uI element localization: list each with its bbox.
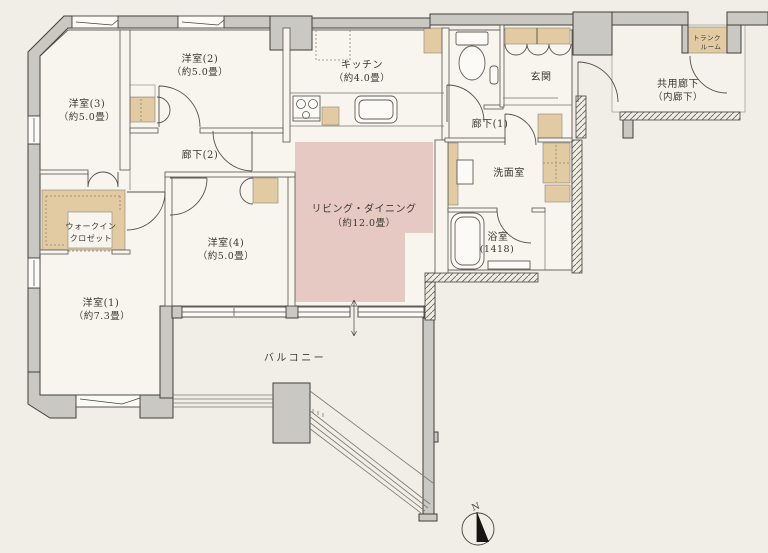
wall-left-mid [28, 144, 40, 258]
bedroom2-closet-shelf [127, 85, 155, 97]
kitchen-cabinet [322, 107, 339, 125]
room-size-living: （約12.0畳） [332, 217, 395, 229]
shoe-cabinet [505, 28, 570, 44]
bathtub-inner [455, 217, 480, 265]
room-size-bedroom1: （約7.3畳） [74, 310, 131, 322]
wall-left-lower [28, 288, 40, 372]
wall-top-1 [118, 16, 178, 28]
room-size-bedroom4: （約5.0畳） [198, 250, 255, 262]
room-label-bathroom: 浴室 [488, 230, 509, 243]
room-label-wic-line2: クロゼット [70, 233, 113, 243]
room-label-trunk-line1: トランク [693, 34, 721, 42]
room-label-bedroom2: 洋室(2) [182, 52, 219, 65]
wall-entrance-block [573, 12, 612, 55]
room-label-kitchen: キッチン [341, 59, 383, 71]
room-label-hallway2: 廊下(2) [182, 148, 219, 161]
bedroom4-closet [253, 178, 278, 203]
room-label-bedroom1: 洋室(1) [83, 296, 120, 309]
bath-counter [488, 261, 530, 269]
floor-plan: N 洋室(3) （約5.0畳） 洋室(2) （約5.0畳） キッチン （約4.0… [0, 0, 768, 553]
room-size-bathroom: (1418) [480, 244, 515, 255]
boundary-wall-bath-bottom [425, 273, 538, 282]
stove [293, 96, 320, 121]
wall-balcony-right-notch [434, 432, 438, 442]
pillar-top [270, 16, 312, 50]
hall-storage [538, 114, 562, 140]
room-label-bedroom3: 洋室(3) [69, 97, 106, 110]
room-label-balcony: バルコニー [264, 352, 326, 364]
vanity-counter [448, 143, 458, 205]
balcony-pillar [273, 383, 310, 443]
room-label-washroom: 洗面室 [493, 166, 525, 179]
wall-corridor-top [612, 12, 688, 25]
wall-bottom-seg2 [286, 306, 298, 318]
room-label-corridor: 共用廊下 [657, 77, 699, 90]
entry-door-frame [576, 96, 586, 138]
room-size-bedroom2: （約5.0畳） [172, 66, 229, 78]
toilet-tank [456, 32, 488, 45]
wall-top-entrance [430, 14, 573, 25]
vanity-sink [457, 160, 473, 184]
boundary-corridor-bottom [620, 112, 740, 120]
wall-bottom-seg1 [172, 306, 182, 318]
bedroom2-closet [128, 97, 155, 122]
wall-balcony-left [160, 306, 173, 398]
boundary-wall-se [425, 282, 435, 320]
wall-balcony-right [423, 318, 434, 516]
toilet-paper-holder [490, 66, 498, 84]
room-size-corridor: （内廊下） [653, 91, 703, 103]
washroom-storage [545, 185, 570, 202]
wall-trunk-left [682, 25, 688, 53]
wall-balcony-right-foot [419, 514, 437, 521]
kitchen-storage [424, 28, 443, 53]
boundary-wall-right [572, 140, 582, 273]
room-size-kitchen: （約4.0畳） [334, 72, 391, 84]
room-label-living: リビング・ダイニング [312, 202, 417, 215]
room-label-trunk-line2: ルーム [701, 43, 722, 51]
room-label-bedroom4: 洋室(4) [208, 236, 245, 249]
room-label-wic-line1: ウォークイン [66, 222, 117, 231]
room-label-entrance: 玄関 [531, 70, 552, 83]
room-size-bedroom3: （約5.0畳） [59, 111, 116, 123]
wall-top-kitchen [312, 18, 430, 28]
wall-top-2 [224, 16, 270, 28]
wall-trunk-right [727, 25, 741, 53]
wall-corridor-top-right [727, 12, 768, 25]
room-label-hallway1: 廊下(1) [472, 117, 509, 130]
toilet-bowl [459, 46, 485, 80]
